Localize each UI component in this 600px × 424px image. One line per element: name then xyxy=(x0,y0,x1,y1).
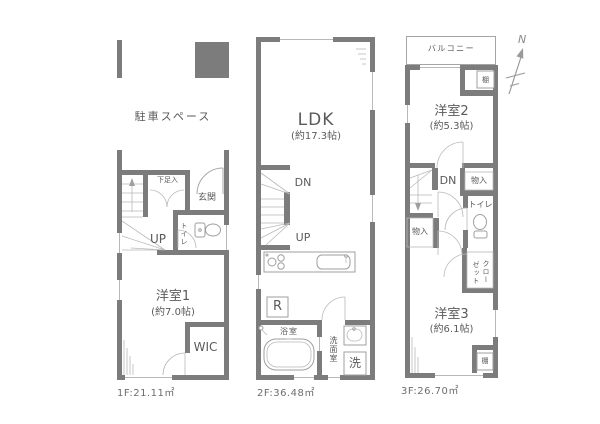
room-size-bedroom2: (約5.3帖) xyxy=(405,121,498,133)
closet-label-col1: クロー xyxy=(480,255,490,288)
bedroom2-door-arc-icon xyxy=(437,142,463,168)
wall xyxy=(462,163,498,168)
wall xyxy=(117,170,190,175)
room-label-toilet: トイレ xyxy=(467,200,494,209)
wall xyxy=(284,192,290,225)
window xyxy=(125,375,172,380)
room-label-bedroom2: 洋室2 xyxy=(405,105,498,120)
room-label-shoe-closet: 下足入 xyxy=(150,176,185,184)
wall xyxy=(462,288,498,293)
wall xyxy=(345,320,375,325)
window xyxy=(224,225,229,250)
room-label-ldk: LDK xyxy=(266,111,366,131)
wall xyxy=(173,210,224,215)
closet-label-col2: ゼット xyxy=(470,257,480,288)
room-size-bedroom1: (約7.0帖) xyxy=(123,307,223,319)
north-arrow-icon: N xyxy=(502,30,547,102)
room-size-ldk: (約17.3帖) xyxy=(266,131,366,143)
wall xyxy=(143,175,148,217)
toilet-icon xyxy=(195,223,221,237)
wall xyxy=(224,150,229,225)
wall xyxy=(256,289,261,380)
wall xyxy=(405,373,435,378)
floor-plan-canvas: 駐車スペース xyxy=(0,0,600,424)
washbasin-icon xyxy=(344,326,366,345)
wall-hatch-lines xyxy=(124,340,133,375)
wall-hatch-lines xyxy=(356,49,366,64)
refrigerator-label: R xyxy=(267,300,288,315)
window xyxy=(294,375,314,380)
wall xyxy=(405,163,435,168)
stairs-down-label: DN xyxy=(436,175,460,188)
wall xyxy=(460,90,498,96)
wall xyxy=(117,150,122,233)
wall xyxy=(433,218,439,248)
room-label-toilet: トイレ xyxy=(178,218,188,250)
window xyxy=(420,65,465,70)
wall xyxy=(261,245,290,250)
wic-door-arc-icon xyxy=(163,353,185,375)
shelf-top-label: 棚 xyxy=(477,76,494,84)
wall xyxy=(370,110,375,195)
room-label-washroom: 洗面室 xyxy=(327,331,338,367)
area-label-2f: 2F:36.48㎡ xyxy=(257,388,367,400)
wall xyxy=(256,375,294,380)
bedroom3-door-arc-icon xyxy=(438,231,462,255)
laundry-label: 洗 xyxy=(344,357,366,371)
wall xyxy=(493,337,498,378)
storage-top-label: 物入 xyxy=(465,176,493,185)
wall xyxy=(493,65,498,310)
toilet-icon xyxy=(474,215,488,239)
wall xyxy=(117,375,125,380)
storage-left-label: 物入 xyxy=(407,227,433,236)
window xyxy=(280,37,333,42)
wall xyxy=(463,230,468,248)
kitchen-counter-icon xyxy=(264,252,355,272)
stairs-icon xyxy=(410,170,432,211)
entrance-door-arc-icon xyxy=(197,168,223,194)
wall xyxy=(370,222,375,380)
stairs-down-label: DN xyxy=(290,177,316,190)
room-label-wic: WIC xyxy=(187,341,224,355)
wall xyxy=(405,65,410,105)
wall xyxy=(314,375,328,380)
floor-2f: LDK (約17.3帖) DN UP R 浴室 洗面室 洗 2F:36.48㎡ xyxy=(256,37,375,407)
wall xyxy=(261,165,290,170)
washroom-door-arc-icon xyxy=(322,297,345,320)
wall xyxy=(224,250,229,375)
wall xyxy=(117,40,122,78)
parking-block xyxy=(195,42,229,78)
wall xyxy=(157,250,224,255)
north-label: N xyxy=(518,33,526,46)
shoe-closet-doors-icon xyxy=(150,190,184,207)
stairs-up-label: UP xyxy=(290,232,316,245)
room-label-entrance: 玄関 xyxy=(191,193,223,203)
wall xyxy=(317,351,322,375)
wall xyxy=(333,37,375,42)
wall xyxy=(117,253,122,280)
shelf-bottom-label: 棚 xyxy=(477,357,493,365)
floor-2f-linework xyxy=(256,37,375,407)
parking-label: 駐車スペース xyxy=(119,111,227,124)
wall xyxy=(185,175,190,210)
wall xyxy=(405,123,410,378)
window xyxy=(370,72,375,110)
wall xyxy=(117,300,122,375)
wall xyxy=(256,37,261,275)
window xyxy=(256,275,261,289)
wall xyxy=(185,322,224,327)
floor-3f: バルコニー xyxy=(405,35,498,407)
wall xyxy=(340,375,375,380)
window xyxy=(317,337,322,351)
wall xyxy=(407,213,433,218)
area-label-1f: 1F:21.11㎡ xyxy=(117,388,227,400)
bathtub-icon xyxy=(264,339,314,370)
window xyxy=(328,375,340,380)
wall-hatch-lines xyxy=(412,337,418,373)
toilet-door-arc-icon xyxy=(445,208,467,230)
floor-1f: 駐車スペース xyxy=(117,40,229,412)
area-label-3f: 3F:26.70㎡ xyxy=(401,386,501,398)
room-size-bedroom3: (約6.1帖) xyxy=(405,324,498,336)
room-label-balcony: バルコニー xyxy=(408,44,495,53)
window xyxy=(117,280,122,300)
wall xyxy=(483,373,498,378)
wall xyxy=(462,248,467,288)
stairs-up-label: UP xyxy=(145,233,171,247)
window xyxy=(435,373,483,378)
window xyxy=(117,233,122,253)
room-label-bath: 浴室 xyxy=(271,327,307,336)
wall xyxy=(460,65,465,90)
window xyxy=(370,195,375,222)
wall xyxy=(317,325,322,337)
wall xyxy=(256,320,322,325)
room-label-bedroom1: 洋室1 xyxy=(123,290,223,305)
room-label-bedroom3: 洋室3 xyxy=(405,308,498,323)
wall xyxy=(370,37,375,72)
wall xyxy=(172,375,229,380)
